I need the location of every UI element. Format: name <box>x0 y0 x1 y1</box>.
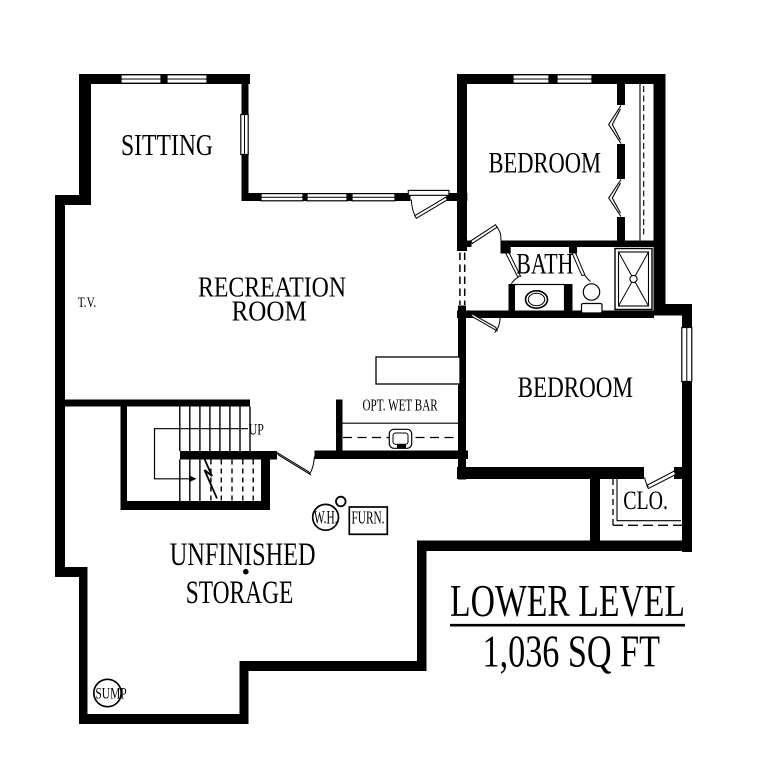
svg-text:1,036 SQ FT: 1,036 SQ FT <box>483 627 661 677</box>
svg-text:SUMP: SUMP <box>95 685 126 702</box>
svg-text:FURN.: FURN. <box>352 508 385 528</box>
svg-text:W.H.: W.H. <box>314 507 338 528</box>
svg-text:CLO.: CLO. <box>623 486 668 515</box>
svg-text:LOWER LEVEL: LOWER LEVEL <box>450 576 685 626</box>
svg-text:ROOM: ROOM <box>232 296 307 328</box>
svg-text:OPT. WET BAR: OPT. WET BAR <box>363 396 438 415</box>
svg-text:UNFINISHED: UNFINISHED <box>170 537 316 573</box>
svg-text:STORAGE: STORAGE <box>186 575 294 611</box>
svg-text:BATH: BATH <box>516 247 573 280</box>
svg-text:BEDROOM: BEDROOM <box>489 146 602 179</box>
svg-text:SITTING: SITTING <box>121 127 213 162</box>
svg-text:UP: UP <box>249 422 264 439</box>
svg-text:BEDROOM: BEDROOM <box>518 371 633 404</box>
svg-text:T.V.: T.V. <box>78 295 97 311</box>
